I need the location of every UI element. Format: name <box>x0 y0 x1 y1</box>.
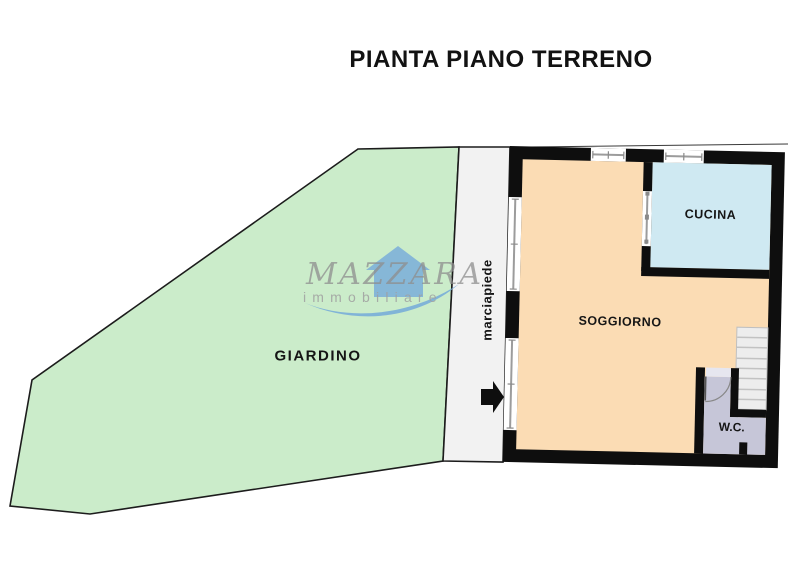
window-icon <box>504 338 519 430</box>
sliding-door-nub <box>644 240 648 244</box>
stairs <box>735 327 768 410</box>
stair-step <box>737 358 767 359</box>
living-room-label: SOGGIORNO <box>578 314 661 330</box>
sliding-door-nub <box>645 215 649 220</box>
wc-door-opening <box>706 368 731 378</box>
stair-step <box>736 378 766 379</box>
kitchen-label: CUCINA <box>685 207 737 222</box>
sliding-door-nub <box>645 192 649 196</box>
watermark-brand: MAZZARA <box>305 257 484 292</box>
sliding-door-icon <box>642 191 652 246</box>
stair-step <box>737 337 767 338</box>
window-icon <box>591 148 626 162</box>
sidewalk-label: marciapiede <box>480 259 495 340</box>
stair-step <box>736 399 766 400</box>
page-title: PIANTA PIANO TERRENO <box>349 46 652 73</box>
floorplan-page: PIANTA PIANO TERRENO GIARDINO MAZZARA im… <box>0 0 800 565</box>
window-icon <box>507 197 522 291</box>
garden-label: GIARDINO <box>275 348 362 365</box>
stairs-bottom-wall <box>730 409 766 418</box>
stair-step <box>737 347 767 348</box>
window-icon <box>664 149 704 163</box>
watermark-subtitle: immobiliare <box>303 289 443 305</box>
garden-polygon <box>10 147 459 514</box>
building: SOGGIORNO CUCINA W.C. <box>503 146 785 468</box>
wc-label: W.C. <box>719 420 745 435</box>
stair-step <box>736 389 766 390</box>
stair-step <box>737 368 767 369</box>
wc-door-leaf <box>705 377 706 401</box>
wc-wall-stub <box>739 442 747 454</box>
floorplan-drawing: PIANTA PIANO TERRENO GIARDINO MAZZARA im… <box>0 0 800 565</box>
garden-area: GIARDINO <box>10 147 459 514</box>
